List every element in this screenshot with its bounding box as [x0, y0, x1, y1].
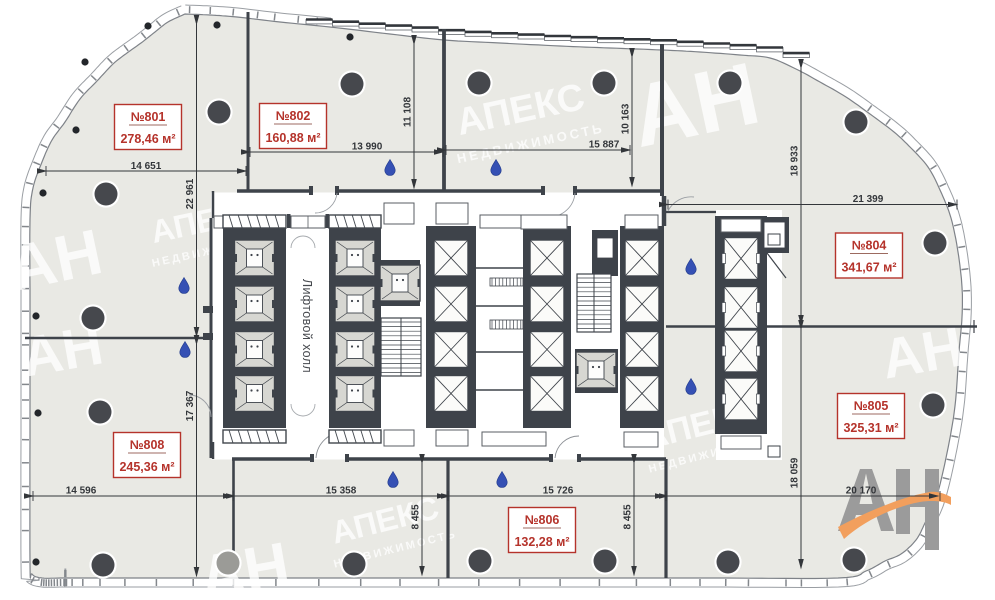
- svg-text:18 059: 18 059: [790, 457, 801, 488]
- svg-text:132,28 м²: 132,28 м²: [514, 535, 569, 549]
- svg-text:22 961: 22 961: [185, 178, 196, 209]
- svg-text:№808: №808: [130, 438, 165, 452]
- svg-text:15 358: 15 358: [326, 486, 357, 497]
- svg-text:13 990: 13 990: [352, 142, 383, 153]
- svg-text:18 933: 18 933: [790, 145, 801, 176]
- svg-text:№806: №806: [525, 513, 560, 527]
- svg-text:14 651: 14 651: [131, 161, 162, 172]
- svg-text:№804: №804: [852, 239, 887, 253]
- svg-text:11 108: 11 108: [403, 97, 414, 127]
- svg-text:Лифтовой холл: Лифтовой холл: [300, 279, 314, 373]
- svg-text:№802: №802: [276, 109, 311, 123]
- svg-text:10 163: 10 163: [621, 103, 632, 134]
- svg-text:160,88 м²: 160,88 м²: [265, 131, 320, 145]
- svg-text:14 596: 14 596: [66, 486, 97, 497]
- svg-text:15 887: 15 887: [589, 140, 620, 151]
- svg-text:17 367: 17 367: [185, 390, 196, 421]
- svg-text:20 170: 20 170: [846, 486, 877, 497]
- svg-text:341,67 м²: 341,67 м²: [841, 261, 896, 275]
- svg-text:15 726: 15 726: [543, 486, 574, 497]
- svg-text:8 455: 8 455: [411, 504, 422, 529]
- svg-text:325,31 м²: 325,31 м²: [843, 421, 898, 435]
- svg-text:№805: №805: [854, 399, 889, 413]
- svg-text:278,46 м²: 278,46 м²: [120, 132, 175, 146]
- svg-text:8 455: 8 455: [623, 504, 634, 529]
- svg-text:№801: №801: [131, 110, 166, 124]
- svg-text:245,36 м²: 245,36 м²: [119, 460, 174, 474]
- svg-text:21 399: 21 399: [853, 194, 884, 205]
